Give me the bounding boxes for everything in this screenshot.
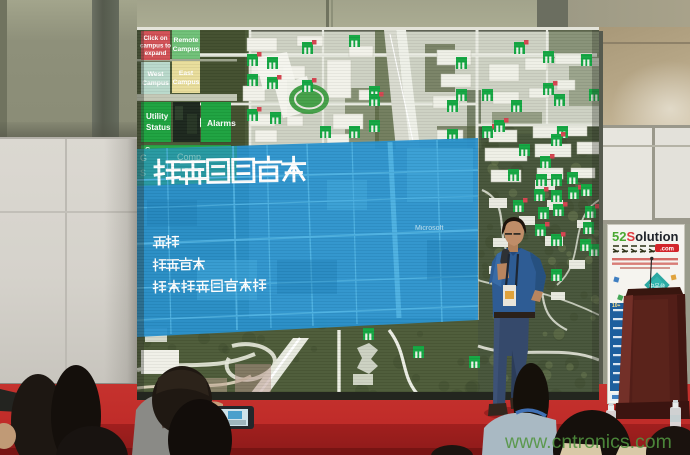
svg-text:www.cntronics.com: www.cntronics.com: [504, 431, 672, 453]
